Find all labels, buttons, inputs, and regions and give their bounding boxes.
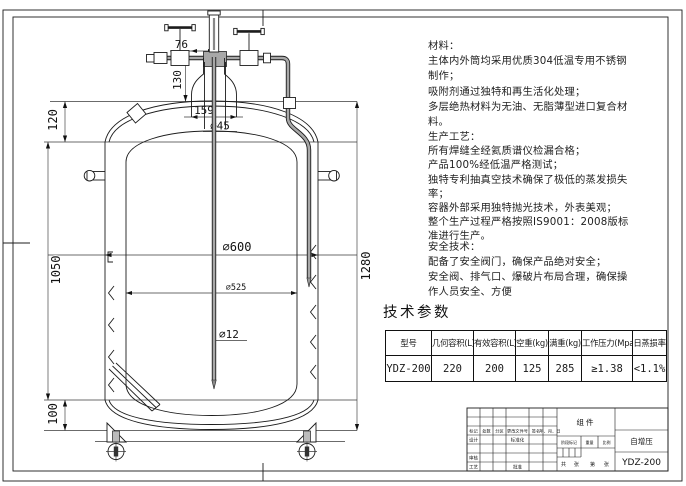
- bottom-dip-tube: [109, 363, 160, 411]
- inner-vessel: [126, 131, 297, 416]
- dim-label-1050: 1050: [49, 256, 63, 285]
- dim-label-130: 130: [171, 70, 184, 90]
- tb-stage-mark: 阶段标记: [561, 439, 577, 445]
- tb-audit-label: 审核: [469, 455, 478, 462]
- notes-materials: 材料： 主体内外筒均采用优质304低温专用不锈钢 制作； 吸附剂通过独特和再生活…: [428, 39, 678, 130]
- tech-params-table: 型号 几何容积(L) 有效容积(L) 空重(kg) 满重(kg) 工作压力(Mp…: [385, 330, 667, 382]
- col-effective-volume: 有效容积(L): [474, 331, 516, 356]
- col-geometric-volume: 几何容积(L): [432, 331, 474, 356]
- tech-params-heading: 技术参数: [383, 301, 451, 322]
- right-small-fitting: [264, 53, 271, 63]
- tech-params-header-row: 型号 几何容积(L) 有效容积(L) 空重(kg) 满重(kg) 工作压力(Mp…: [386, 331, 667, 356]
- dim-label-120: 120: [46, 109, 60, 131]
- tb-rev-zone: 分区: [495, 428, 503, 435]
- dim-label-dia600: ∅600: [223, 240, 252, 254]
- right-handle: [318, 170, 339, 181]
- left-end-cap: [147, 55, 155, 63]
- tb-design-label: 设计: [469, 437, 478, 444]
- drawing-sheet: 76 130 159 ∅45 120 1050 100 ∅600 ∅525 ∅1…: [0, 0, 686, 486]
- left-caster: [106, 423, 126, 462]
- col-evaporation-rate: 日蒸损率: [633, 331, 667, 356]
- value-full-weight: 285: [549, 356, 582, 382]
- tb-sheets-total-label: 共: [561, 461, 566, 468]
- col-full-weight: 满重(kg): [549, 331, 582, 356]
- tb-sheet-no-label: 第: [590, 461, 595, 468]
- tb-rev-date: 年、月、日: [540, 428, 561, 435]
- dim-label-dia12: ∅12: [219, 328, 239, 341]
- dim-label-100: 100: [46, 403, 60, 425]
- tb-model: YDZ-200: [621, 458, 661, 468]
- tb-craft-label: 工艺: [469, 465, 478, 471]
- tb-product-name: 自增压: [630, 436, 653, 446]
- tb-weight: 重量: [586, 439, 594, 445]
- tb-component: 组件: [577, 417, 596, 427]
- tech-params-data-row: YDZ-200 220 200 125 285 ≥1.38 <1.1%: [386, 356, 667, 382]
- tb-scale: 比例: [603, 439, 611, 445]
- dim-label-dia525: ∅525: [226, 283, 246, 293]
- left-pipe-fitting: [154, 53, 167, 64]
- value-geometric-volume: 220: [432, 356, 474, 382]
- tb-rev-mark: 标记: [469, 428, 478, 435]
- tb-standardize-label: 标准化: [511, 437, 525, 444]
- tb-rev-doc: 更改文件号: [507, 428, 528, 435]
- left-handle: [84, 170, 105, 181]
- dim-label-76: 76: [175, 38, 188, 51]
- value-model: YDZ-200: [386, 356, 432, 382]
- title-block: 标记 处数 分区 更改文件号 签名 年、月、日 设计 标准化 审核 工艺 批准 …: [467, 408, 668, 471]
- value-empty-weight: 125: [516, 356, 549, 382]
- tb-sheets-total-unit: 张: [574, 461, 579, 468]
- value-effective-volume: 200: [474, 356, 516, 382]
- notes-safety: 安全技术： 配备了安全阀门，确保产品绝对安全； 安全阀、排气口、爆破片布局合理，…: [428, 240, 678, 300]
- caster-wheels: [106, 423, 317, 462]
- tb-rev-count: 处数: [482, 428, 491, 435]
- top-pipe-fitting: [284, 98, 296, 109]
- dim-label-1280: 1280: [359, 252, 373, 281]
- col-working-pressure: 工作压力(Mpa): [582, 331, 633, 356]
- dimension-layer: 76 130 159 ∅45 120 1050 100 ∅600 ∅525 ∅1…: [44, 38, 373, 442]
- tb-approve-label: 批准: [513, 464, 522, 471]
- right-caster: [297, 423, 317, 462]
- notes-process: 生产工艺： 所有焊缝全经氦质谱仪检漏合格； 产品100%经低温严格测试； 独特专…: [428, 130, 678, 244]
- tb-sheet-no-unit: 张: [604, 461, 609, 468]
- col-model: 型号: [386, 331, 432, 356]
- value-evaporation-rate: <1.1%: [633, 356, 667, 382]
- col-empty-weight: 空重(kg): [516, 331, 549, 356]
- value-working-pressure: ≥1.38: [582, 356, 633, 382]
